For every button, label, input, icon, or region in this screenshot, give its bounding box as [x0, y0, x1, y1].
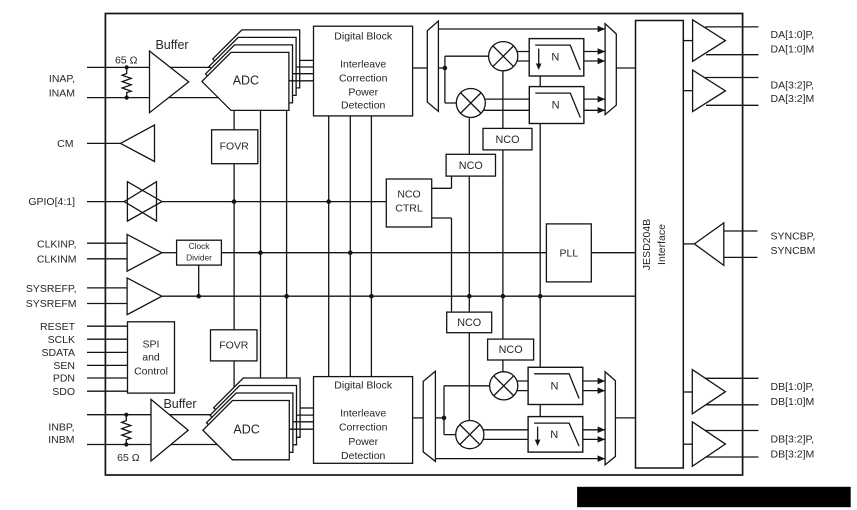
svg-text:65 Ω: 65 Ω: [117, 452, 140, 464]
svg-text:SYNCBP,: SYNCBP,: [771, 230, 816, 242]
svg-text:PLL: PLL: [560, 247, 579, 259]
svg-text:Detection: Detection: [341, 450, 386, 462]
svg-text:SDATA: SDATA: [42, 347, 75, 359]
svg-text:Clock: Clock: [189, 241, 211, 251]
svg-text:DA[1:0]M: DA[1:0]M: [771, 43, 815, 55]
svg-text:NCO: NCO: [459, 160, 483, 172]
svg-text:Correction: Correction: [339, 72, 388, 84]
svg-text:RESET: RESET: [40, 321, 76, 333]
svg-text:and: and: [142, 352, 160, 364]
svg-text:SCLK: SCLK: [48, 334, 75, 346]
svg-text:PDN: PDN: [53, 373, 75, 385]
svg-text:JESD204B: JESD204B: [641, 219, 653, 270]
svg-text:SYSREFM: SYSREFM: [26, 298, 77, 310]
svg-text:INAM: INAM: [49, 88, 75, 100]
svg-text:SYSREFP,: SYSREFP,: [26, 283, 77, 295]
svg-text:Digital Block: Digital Block: [334, 380, 393, 392]
svg-text:Power: Power: [348, 86, 378, 98]
svg-text:DB[1:0]P,: DB[1:0]P,: [771, 381, 815, 393]
svg-text:NCO: NCO: [397, 188, 420, 200]
svg-text:Control: Control: [134, 366, 168, 378]
svg-text:SDO: SDO: [52, 386, 75, 398]
svg-text:INBP,: INBP,: [48, 421, 74, 433]
svg-text:65 Ω: 65 Ω: [115, 55, 138, 67]
svg-text:Power: Power: [348, 436, 378, 448]
svg-text:SPI: SPI: [143, 338, 160, 350]
svg-text:DB[3:2]M: DB[3:2]M: [771, 448, 815, 460]
svg-text:Interface: Interface: [656, 224, 668, 265]
svg-text:DB[1:0]M: DB[1:0]M: [771, 396, 815, 408]
svg-text:N: N: [552, 100, 560, 112]
svg-text:Detection: Detection: [341, 100, 386, 112]
svg-text:CTRL: CTRL: [395, 203, 423, 215]
svg-text:SYNCBM: SYNCBM: [771, 245, 816, 257]
svg-text:ADC: ADC: [233, 423, 259, 437]
svg-text:GPIO[4:1]: GPIO[4:1]: [28, 196, 75, 208]
svg-text:CM: CM: [57, 138, 73, 150]
svg-text:N: N: [550, 380, 558, 392]
svg-text:NCO: NCO: [457, 317, 481, 329]
svg-text:Digital Block: Digital Block: [334, 31, 393, 43]
svg-text:Interleave: Interleave: [340, 407, 386, 419]
svg-text:DA[3:2]P,: DA[3:2]P,: [771, 80, 815, 92]
svg-text:ADC: ADC: [233, 74, 259, 88]
svg-text:NCO: NCO: [499, 344, 523, 356]
svg-text:DA[1:0]P,: DA[1:0]P,: [771, 29, 815, 41]
svg-text:NCO: NCO: [496, 134, 520, 146]
svg-text:FOVR: FOVR: [220, 141, 250, 153]
svg-text:CLKINM: CLKINM: [37, 254, 77, 266]
svg-text:N: N: [551, 52, 559, 64]
svg-text:CLKINP,: CLKINP,: [37, 239, 77, 251]
svg-text:SEN: SEN: [53, 360, 75, 372]
svg-text:FOVR: FOVR: [219, 339, 249, 351]
svg-text:INBM: INBM: [48, 434, 74, 446]
svg-text:Buffer: Buffer: [155, 38, 188, 52]
svg-text:Divider: Divider: [186, 252, 212, 262]
svg-text:Interleave: Interleave: [340, 58, 386, 70]
svg-text:INAP,: INAP,: [49, 73, 75, 85]
svg-text:DA[3:2]M: DA[3:2]M: [771, 93, 815, 105]
svg-text:Correction: Correction: [339, 422, 388, 434]
svg-text:N: N: [550, 429, 558, 441]
svg-text:DB[3:2]P,: DB[3:2]P,: [771, 433, 815, 445]
svg-text:Buffer: Buffer: [163, 397, 196, 411]
